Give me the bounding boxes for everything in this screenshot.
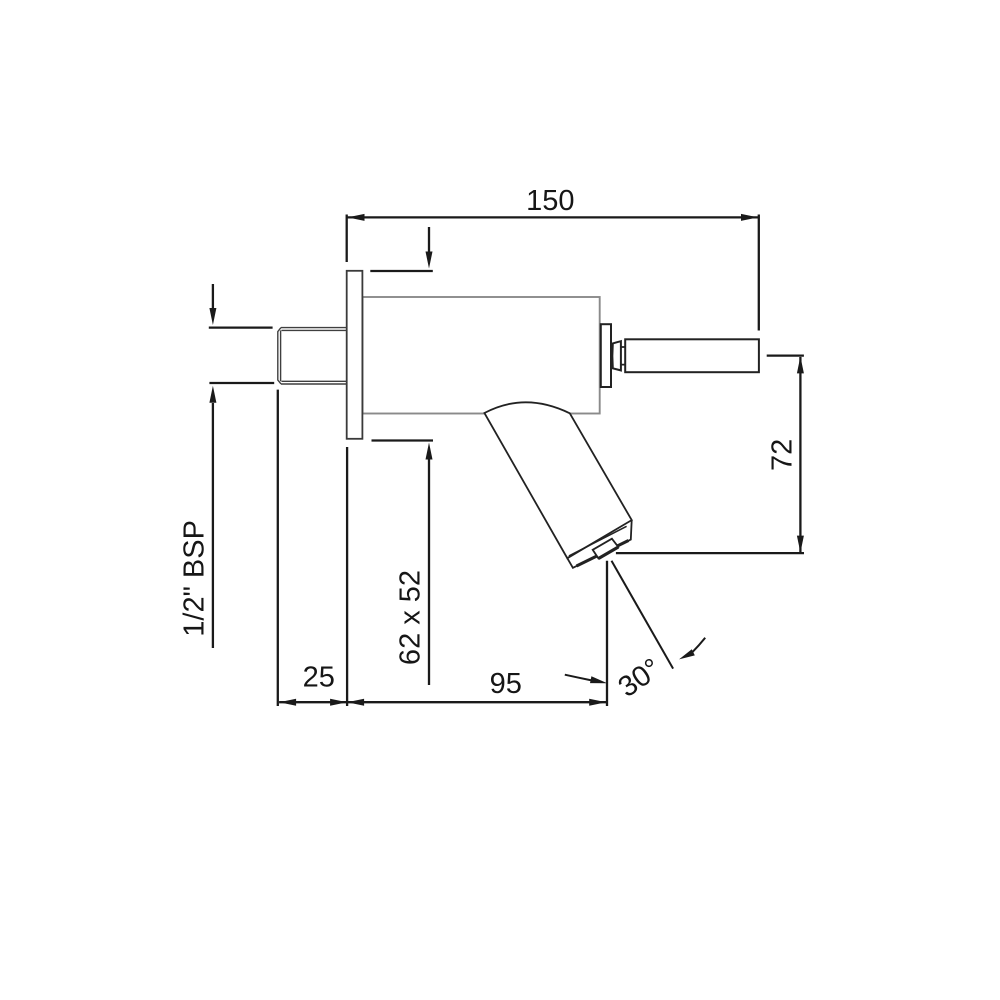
svg-text:25: 25 [303, 661, 335, 693]
svg-text:62 x 52: 62 x 52 [395, 570, 427, 665]
svg-text:95: 95 [490, 668, 522, 700]
svg-text:150: 150 [526, 185, 574, 217]
svg-text:72: 72 [767, 439, 799, 471]
svg-text:1/2" BSP: 1/2" BSP [179, 520, 211, 637]
